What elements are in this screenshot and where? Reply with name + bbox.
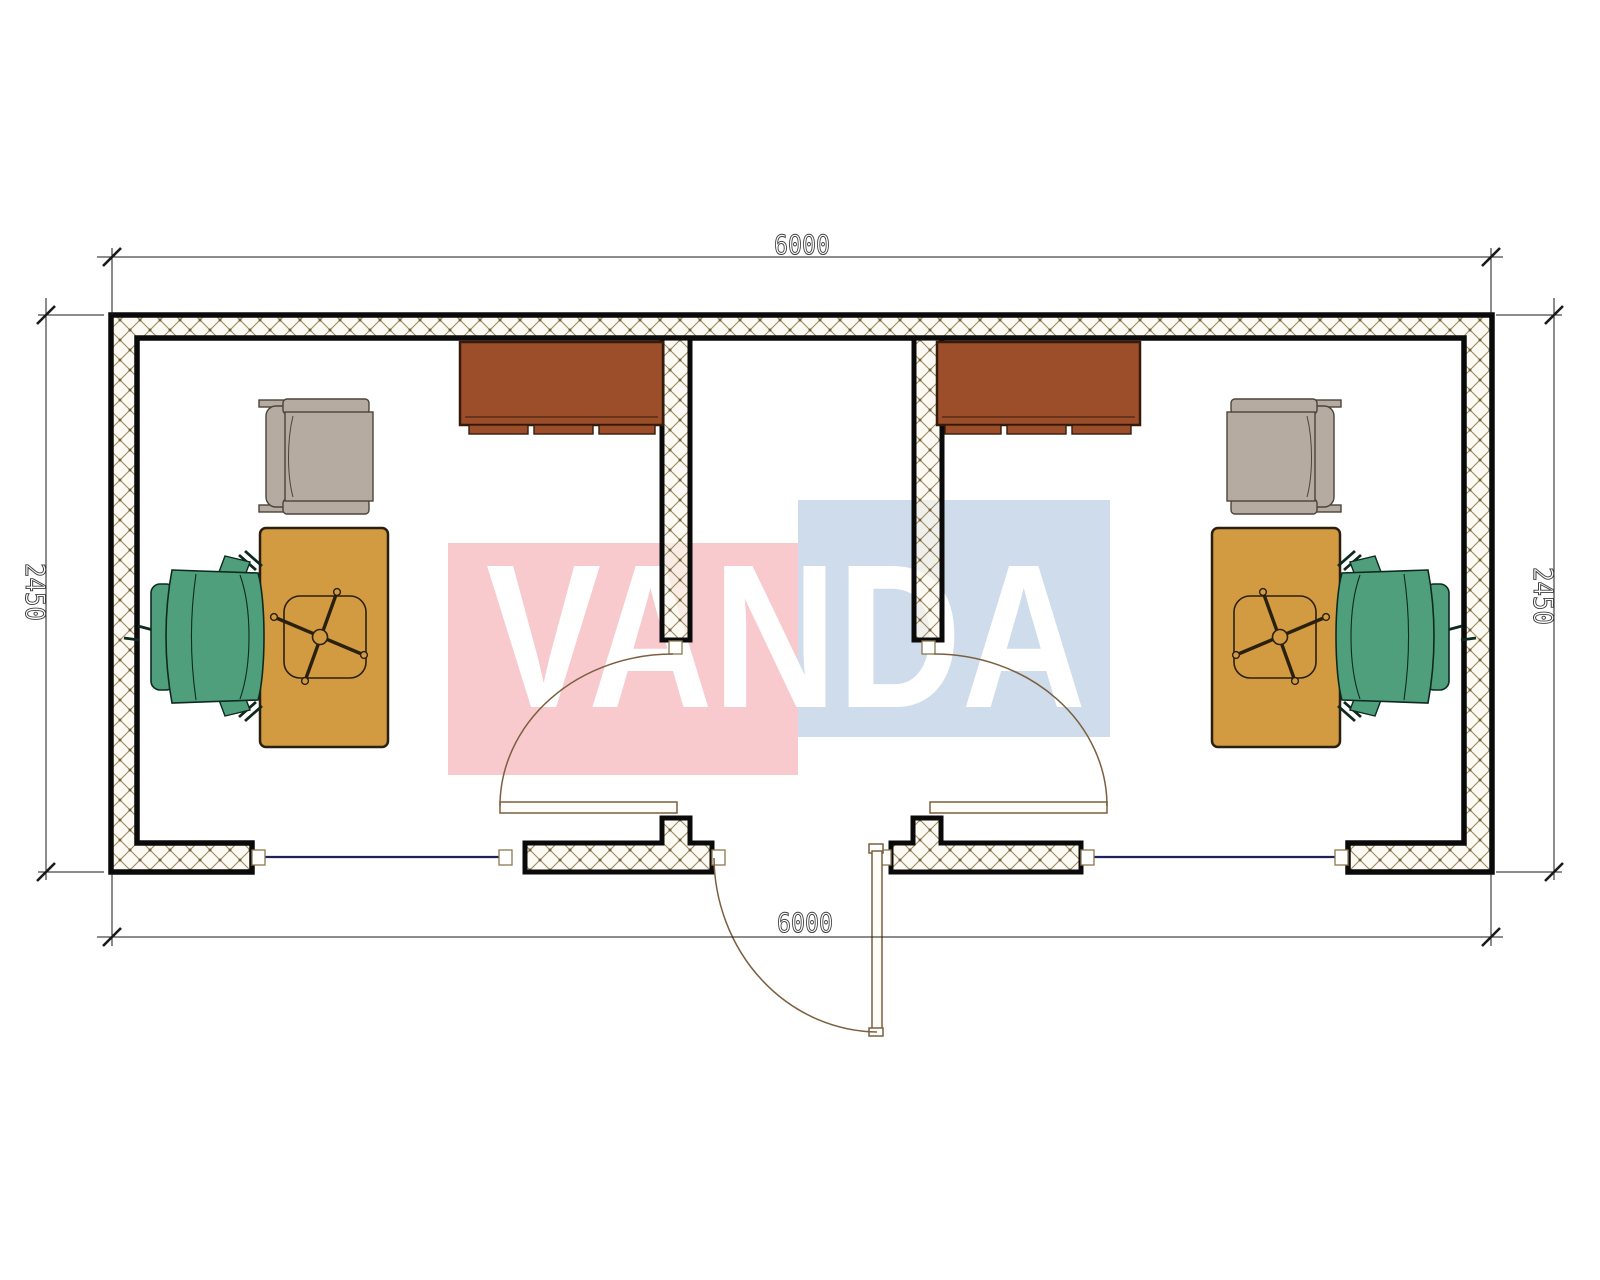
floor-plan-canvas: VANDA	[0, 0, 1600, 1280]
dimension-left-label: 2450	[19, 563, 50, 621]
interior-door-left-leaf	[500, 802, 677, 813]
door-hinge-cap	[922, 641, 935, 654]
entrance-door-leaf	[872, 851, 882, 1032]
entrance-door-swing-arc	[714, 858, 877, 1032]
watermark-text: VANDA	[486, 522, 1086, 751]
bottom-wall-left-door-block	[525, 818, 712, 872]
bottom-wall-right-door-block	[891, 818, 1081, 872]
window-end-cap	[1081, 850, 1094, 865]
partition-wall-left	[662, 338, 690, 640]
window-end-cap	[252, 850, 265, 865]
window-end-cap	[1335, 850, 1348, 865]
dimension-right-label: 2450	[1527, 567, 1558, 625]
watermark: VANDA	[448, 500, 1110, 775]
window-end-cap	[499, 850, 512, 865]
interior-door-right-leaf	[930, 802, 1107, 813]
floor-plan-page: VANDA	[0, 0, 1600, 1280]
door-hinge-cap	[669, 641, 682, 654]
dimension-top-label: 6000	[774, 230, 830, 261]
dimension-bottom-label: 6000	[777, 908, 833, 939]
